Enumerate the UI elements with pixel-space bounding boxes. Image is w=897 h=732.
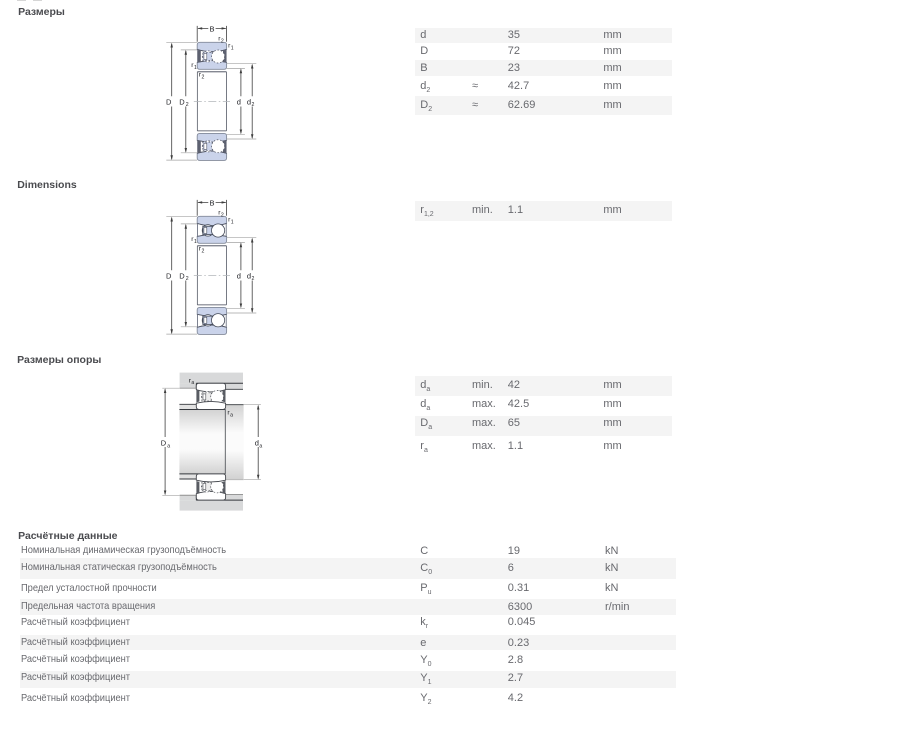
- svg-text:2: 2: [186, 276, 189, 282]
- svg-text:2: 2: [252, 102, 255, 108]
- svg-text:a: a: [259, 443, 262, 449]
- svg-text:D: D: [161, 438, 167, 447]
- svg-text:B: B: [209, 24, 214, 33]
- svg-text:D: D: [166, 271, 172, 280]
- svg-text:2: 2: [202, 248, 205, 254]
- svg-text:2: 2: [252, 276, 255, 282]
- svg-text:1: 1: [231, 46, 234, 52]
- svg-text:a: a: [191, 380, 194, 386]
- svg-text:a: a: [230, 413, 233, 419]
- svg-text:D: D: [166, 97, 172, 106]
- svg-text:B: B: [209, 198, 214, 207]
- svg-text:2: 2: [202, 74, 205, 80]
- svg-text:d: d: [247, 271, 251, 280]
- svg-text:d: d: [247, 97, 251, 106]
- svg-text:d: d: [237, 271, 241, 280]
- svg-text:2: 2: [221, 38, 224, 44]
- svg-text:1: 1: [194, 65, 197, 71]
- svg-text:d: d: [255, 438, 259, 447]
- svg-text:a: a: [167, 443, 170, 449]
- svg-text:D: D: [179, 97, 185, 106]
- svg-text:2: 2: [186, 102, 189, 108]
- svg-text:1: 1: [231, 219, 234, 225]
- svg-text:2: 2: [221, 212, 224, 218]
- svg-text:1: 1: [194, 238, 197, 244]
- svg-text:d: d: [237, 97, 241, 106]
- svg-text:D: D: [179, 271, 185, 280]
